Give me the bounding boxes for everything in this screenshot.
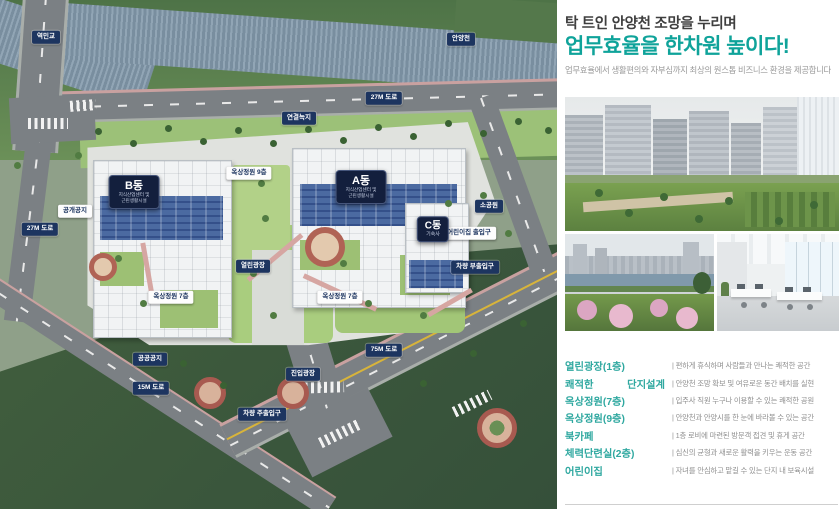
entry-circle — [277, 377, 309, 409]
photo-floor — [717, 296, 839, 331]
building-b-name: B동 — [119, 180, 150, 192]
map-label-open-space: 공개공지 — [58, 205, 92, 218]
crosswalk — [28, 118, 68, 129]
plaza-circle — [89, 253, 117, 281]
photo-tower — [565, 115, 603, 177]
feature-label: 옥상정원(9층) — [565, 410, 665, 425]
map-label-bridge: 역민교 — [32, 31, 60, 44]
photo-tree — [693, 272, 711, 294]
feature-row: 열린광장(1층)| 편하게 휴식하며 사람들과 만나는 쾌적한 공간 — [565, 357, 838, 374]
feature-desc: | 입주사 직원 누구나 이용할 수 있는 쾌적한 공원 — [672, 395, 814, 406]
site-plan-map: 역민교 안양천 27M 도로 연결녹지 옥상정원 9층 공개공지 소공원 어린이… — [0, 0, 557, 509]
feature-label: 어린이집 — [565, 463, 665, 478]
map-label-roof-garden-7f-right: 옥상정원 7층 — [317, 291, 362, 304]
feature-desc: | 안양천 조망 확보 및 여유로운 동간 배치를 실현 — [672, 378, 814, 389]
feature-list: 열린광장(1층)| 편하게 휴식하며 사람들과 만나는 쾌적한 공간 쾌적한 단… — [565, 357, 838, 479]
photo-tower — [573, 244, 587, 274]
feature-row: 쾌적한 단지설계| 안양천 조망 확보 및 여유로운 동간 배치를 실현 — [565, 374, 838, 391]
roundabout — [477, 408, 517, 448]
building-b-use-line2: 근린생활시설 — [119, 198, 150, 204]
feature-label: 열린광장(1층) — [565, 358, 665, 373]
map-label-27m-road-top: 27M 도로 — [366, 92, 402, 105]
feature-row: 어린이집| 자녀를 안심하고 맡길 수 있는 단지 내 보육시설 — [565, 461, 838, 478]
building-c-label: C동 기숙사 — [417, 216, 449, 242]
map-label-small-park: 소공원 — [475, 200, 503, 213]
photo-planters — [745, 192, 835, 227]
photo-tower — [731, 123, 761, 175]
feature-label: 옥상정원(7층) — [565, 393, 665, 408]
photo-rooftop-garden — [565, 234, 714, 331]
map-label-open-plaza: 열린광장 — [236, 260, 270, 273]
feature-desc: | 편하게 휴식하며 사람들과 만나는 쾌적한 공간 — [672, 360, 810, 371]
photo-plant — [721, 282, 729, 296]
building-b-label: B동 지식산업센터 및 근린생활시설 — [109, 175, 160, 209]
map-label-public-space: 공공공지 — [133, 353, 167, 366]
info-panel: 탁 트인 안양천 조망을 누리며 업무효율을 한차원 높이다! 업무효율에서 생… — [563, 0, 840, 509]
map-label-vehicle-sub-entrance: 차량 부출입구 — [451, 261, 499, 274]
building-a-use-line2: 근린생활시설 — [346, 193, 377, 199]
building-c-name: C동 — [425, 220, 441, 231]
photo-office-interior — [717, 234, 839, 331]
entry-circle — [194, 377, 226, 409]
building-a-name: A동 — [346, 175, 377, 187]
photo-tower — [689, 111, 729, 177]
photo-tower — [595, 248, 607, 274]
building-c-use-line1: 기숙사 — [425, 231, 441, 238]
building-a-label: A동 지식산업센터 및 근린생활시설 — [336, 170, 387, 204]
feature-desc: | 심신의 균형과 새로운 활력을 키우는 운동 공간 — [672, 447, 812, 458]
crosswalk — [70, 99, 97, 112]
plaza-circle — [305, 227, 345, 267]
photo-tower — [763, 107, 797, 177]
feature-desc: | 자녀를 안심하고 맡길 수 있는 단지 내 보육시설 — [672, 465, 814, 476]
bottom-divider — [565, 504, 838, 505]
feature-row: 옥상정원(9층)| 안양천과 안양시를 한 눈에 바라볼 수 있는 공간 — [565, 409, 838, 426]
photo-tower — [653, 119, 687, 177]
feature-row: 체력단련실(2층)| 심신의 균형과 새로운 활력을 키우는 운동 공간 — [565, 444, 838, 461]
photo-tower — [605, 105, 651, 180]
feature-row: 북카페| 1층 로비에 마련된 방문객 접견 및 휴게 공간 — [565, 427, 838, 444]
feature-desc: | 안양천과 안양시를 한 눈에 바라볼 수 있는 공간 — [672, 412, 814, 423]
map-label-75m-road: 75M 도로 — [366, 344, 402, 357]
photo-building-exterior — [565, 97, 839, 231]
feature-row: 옥상정원(7층)| 입주사 직원 누구나 이용할 수 있는 쾌적한 공원 — [565, 392, 838, 409]
photo-desk — [731, 289, 771, 297]
map-label-vehicle-main-entrance: 차량 주출입구 — [238, 408, 286, 421]
headline-main: 업무효율을 한차원 높이다! — [565, 30, 789, 60]
map-label-roof-garden-7f-left: 옥상정원 7층 — [148, 291, 193, 304]
photo-desk — [777, 292, 822, 300]
photo-tower — [683, 242, 699, 276]
photo-shrubs — [565, 97, 573, 105]
feature-label: 북카페 — [565, 428, 665, 443]
subtitle: 업무효율에서 생활편의와 자부심까지 최상의 원스톱 비즈니스 환경을 제공합니… — [565, 64, 831, 76]
map-label-entry-plaza: 진입광장 — [286, 368, 320, 381]
garden-court — [232, 165, 290, 260]
feature-label: 체력단련실(2층) — [565, 445, 665, 460]
photo-chairs — [717, 234, 723, 240]
map-label-anyangcheon: 안양천 — [447, 33, 475, 46]
map-label-roof-garden-9f: 옥상정원 9층 — [226, 167, 271, 180]
trees — [0, 0, 7, 7]
map-label-27m-road-left: 27M 도로 — [22, 223, 58, 236]
photo-garden — [565, 294, 714, 331]
photo-flowers — [565, 234, 577, 246]
map-label-15m-road: 15M 도로 — [133, 382, 169, 395]
feature-desc: | 1층 로비에 마련된 방문객 접견 및 휴게 공간 — [672, 430, 805, 441]
feature-label: 쾌적한 단지설계 — [565, 376, 665, 391]
map-label-daycare-entrance: 어린이집 출입구 — [442, 227, 496, 240]
map-label-greenway: 연결녹지 — [282, 112, 316, 125]
